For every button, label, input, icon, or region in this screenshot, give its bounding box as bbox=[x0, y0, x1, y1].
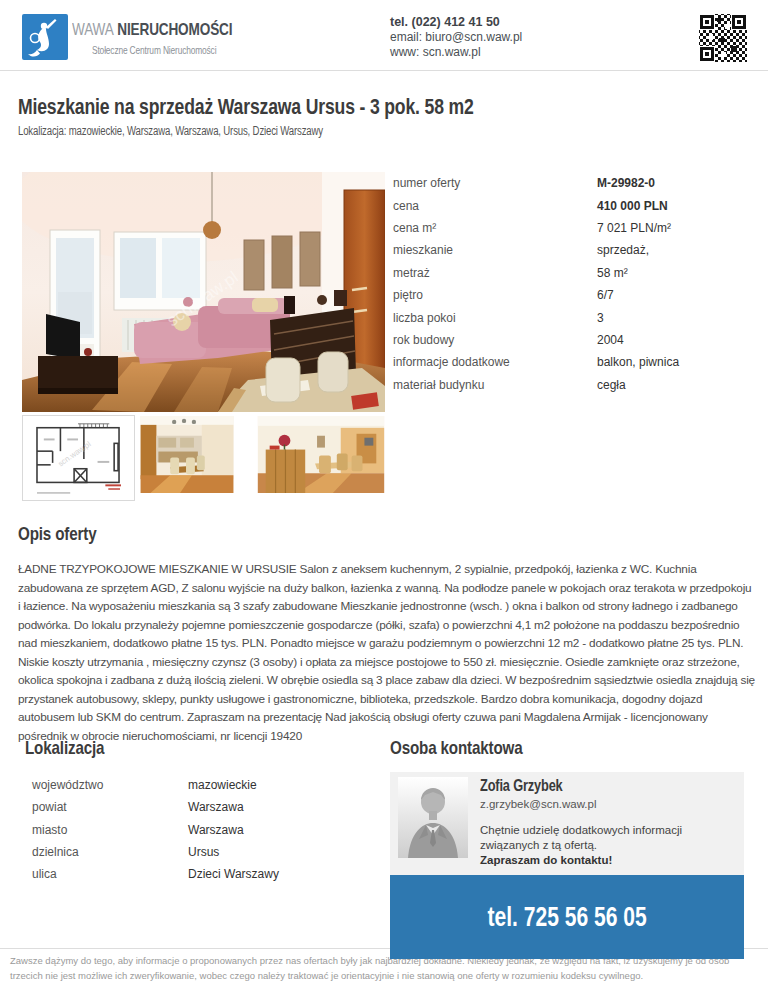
detail-row: cena m² 7 021 PLN/m² bbox=[393, 217, 753, 239]
detail-value: M-29982-0 bbox=[597, 176, 655, 190]
detail-value: balkon, piwnica bbox=[597, 355, 679, 369]
detail-row: metraż 58 m² bbox=[393, 262, 753, 284]
brand-wawa: WAWA bbox=[72, 20, 114, 39]
location-line: Lokalizacja: mazowieckie, Warszawa, Wars… bbox=[18, 124, 399, 138]
agent-phone-number: tel. 725 56 56 05 bbox=[465, 902, 669, 933]
description-text: ŁADNE TRZYPOKOJOWE MIESZKANIE W URSUSIE … bbox=[18, 560, 755, 745]
location-row: powiat Warszawa bbox=[32, 796, 362, 818]
agent-card: Zofia Grzybek z.grzybek@scn.waw.pl Chętn… bbox=[390, 772, 744, 875]
header-email: email: biuro@scn.waw.pl bbox=[390, 30, 522, 45]
qr-code-icon bbox=[697, 12, 749, 64]
living-room-photo: scn.waw.pl bbox=[22, 172, 385, 412]
floorplan-image: scn.waw.pl bbox=[23, 416, 134, 500]
header-contact: tel. (022) 412 41 50 email: biuro@scn.wa… bbox=[390, 15, 522, 60]
person-placeholder-icon bbox=[398, 777, 468, 858]
page-title: Mieszkanie na sprzedaż Warszawa Ursus - … bbox=[18, 94, 588, 120]
detail-value: 58 m² bbox=[597, 266, 628, 280]
agent-info: Zofia Grzybek z.grzybek@scn.waw.pl Chętn… bbox=[480, 777, 740, 866]
main-photo: scn.waw.pl bbox=[22, 172, 385, 412]
detail-label: rok budowy bbox=[393, 333, 597, 347]
agent-name: Zofia Grzybek bbox=[480, 777, 740, 795]
agent-phone-bar: tel. 725 56 56 05 bbox=[390, 875, 744, 959]
location-value: Ursus bbox=[188, 845, 219, 859]
thumbnail-dining bbox=[257, 416, 385, 493]
dining-photo bbox=[257, 416, 385, 493]
detail-value: 6/7 bbox=[597, 288, 614, 302]
agent-avatar bbox=[398, 777, 468, 858]
detail-label: informacje dodatkowe bbox=[393, 355, 597, 369]
detail-label: mieszkanie bbox=[393, 243, 597, 257]
location-value: Warszawa bbox=[188, 823, 244, 837]
detail-value: cegła bbox=[597, 378, 626, 392]
agent-message-bold: Zapraszam do kontaktu! bbox=[480, 854, 740, 866]
detail-label: piętro bbox=[393, 288, 597, 302]
detail-row: liczba pokoi 3 bbox=[393, 306, 753, 328]
detail-row: mieszkanie sprzedaż, bbox=[393, 239, 753, 261]
location-label: miasto bbox=[32, 823, 188, 837]
location-value: Warszawa bbox=[188, 800, 244, 814]
detail-row: informacje dodatkowe balkon, piwnica bbox=[393, 351, 753, 373]
detail-row: cena 410 000 PLN bbox=[393, 194, 753, 216]
detail-value: 2004 bbox=[597, 333, 624, 347]
location-value: Dzieci Warszawy bbox=[188, 867, 279, 881]
detail-value: 410 000 PLN bbox=[597, 199, 668, 213]
offer-page: WAWA NIERUCHOMOŚCI Stołeczne Centrum Nie… bbox=[0, 0, 768, 994]
location-heading: Lokalizacja bbox=[25, 737, 124, 759]
kitchen-photo bbox=[140, 416, 234, 493]
location-row: dzielnica Ursus bbox=[32, 841, 362, 863]
header-phone: tel. (022) 412 41 50 bbox=[390, 15, 522, 30]
location-label: dzielnica bbox=[32, 845, 188, 859]
location-row: ulica Dzieci Warszawy bbox=[32, 863, 362, 885]
detail-label: metraż bbox=[393, 266, 597, 280]
location-label: powiat bbox=[32, 800, 188, 814]
agent-heading: Osoba kontaktowa bbox=[390, 737, 556, 759]
detail-value: 3 bbox=[597, 311, 604, 325]
brand-line: WAWA NIERUCHOMOŚCI bbox=[72, 20, 272, 40]
detail-row: materiał budynku cegła bbox=[393, 374, 753, 396]
detail-row: numer oferty M-29982-0 bbox=[393, 172, 753, 194]
header-www: www: scn.waw.pl bbox=[390, 45, 522, 60]
brand-subtitle: Stołeczne Centrum Nieruchomości bbox=[92, 44, 247, 56]
detail-label: cena bbox=[393, 199, 597, 213]
details-table: numer oferty M-29982-0 cena 410 000 PLN … bbox=[393, 172, 753, 396]
detail-row: piętro 6/7 bbox=[393, 284, 753, 306]
agent-email: z.grzybek@scn.waw.pl bbox=[480, 798, 740, 810]
description-heading: Opis oferty bbox=[18, 523, 116, 545]
agent-message: Chętnie udzielę dodatkowych informacji z… bbox=[480, 823, 740, 853]
detail-value: 7 021 PLN/m² bbox=[597, 221, 671, 235]
detail-label: numer oferty bbox=[393, 176, 597, 190]
location-row: województwo mazowieckie bbox=[32, 774, 362, 796]
detail-label: materiał budynku bbox=[393, 378, 597, 392]
header-divider bbox=[0, 70, 768, 71]
brand-name: NIERUCHOMOŚCI bbox=[117, 20, 232, 39]
thumbnail-kitchen bbox=[140, 416, 234, 493]
detail-value: sprzedaż, bbox=[597, 243, 649, 257]
location-row: miasto Warszawa bbox=[32, 819, 362, 841]
location-value: mazowieckie bbox=[188, 778, 257, 792]
detail-label: liczba pokoi bbox=[393, 311, 597, 325]
location-table: województwo mazowieckie powiat Warszawa … bbox=[32, 774, 362, 885]
location-label: ulica bbox=[32, 867, 188, 881]
detail-label: cena m² bbox=[393, 221, 597, 235]
qr-code bbox=[697, 12, 749, 64]
detail-row: rok budowy 2004 bbox=[393, 329, 753, 351]
location-label: województwo bbox=[32, 778, 188, 792]
syrenka-logo-icon bbox=[22, 14, 68, 60]
thumbnail-floorplan: scn.waw.pl bbox=[22, 415, 135, 501]
agency-logo bbox=[22, 14, 68, 60]
